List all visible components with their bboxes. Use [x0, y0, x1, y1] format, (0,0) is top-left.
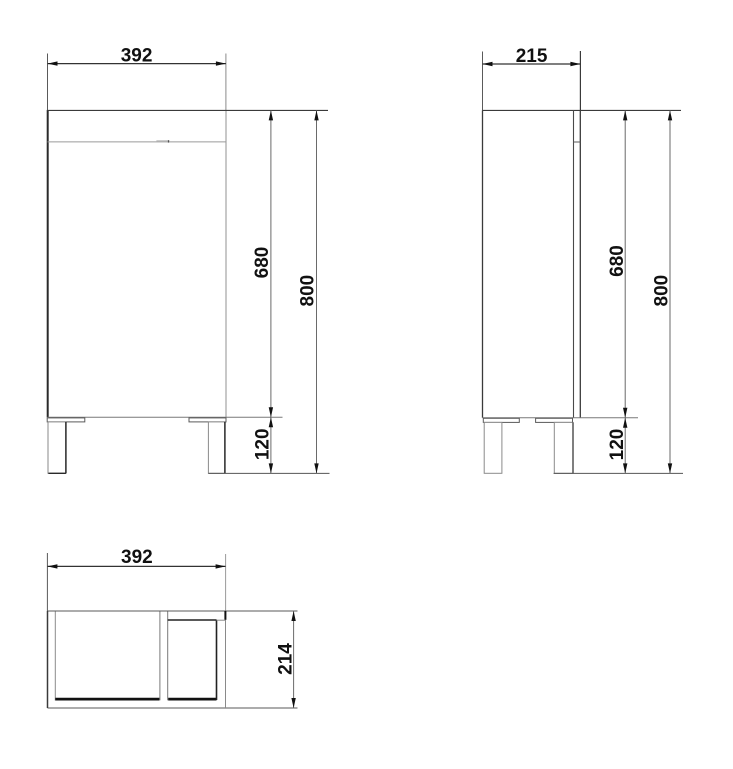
svg-text:214: 214	[275, 643, 296, 675]
svg-text:392: 392	[121, 46, 153, 67]
svg-text:215: 215	[516, 46, 548, 67]
svg-text:800: 800	[651, 275, 672, 307]
svg-text:392: 392	[121, 547, 153, 568]
svg-text:800: 800	[298, 275, 319, 307]
svg-text:680: 680	[252, 247, 273, 279]
svg-text:680: 680	[607, 245, 628, 277]
svg-text:120: 120	[607, 429, 628, 461]
svg-text:120: 120	[252, 428, 273, 460]
